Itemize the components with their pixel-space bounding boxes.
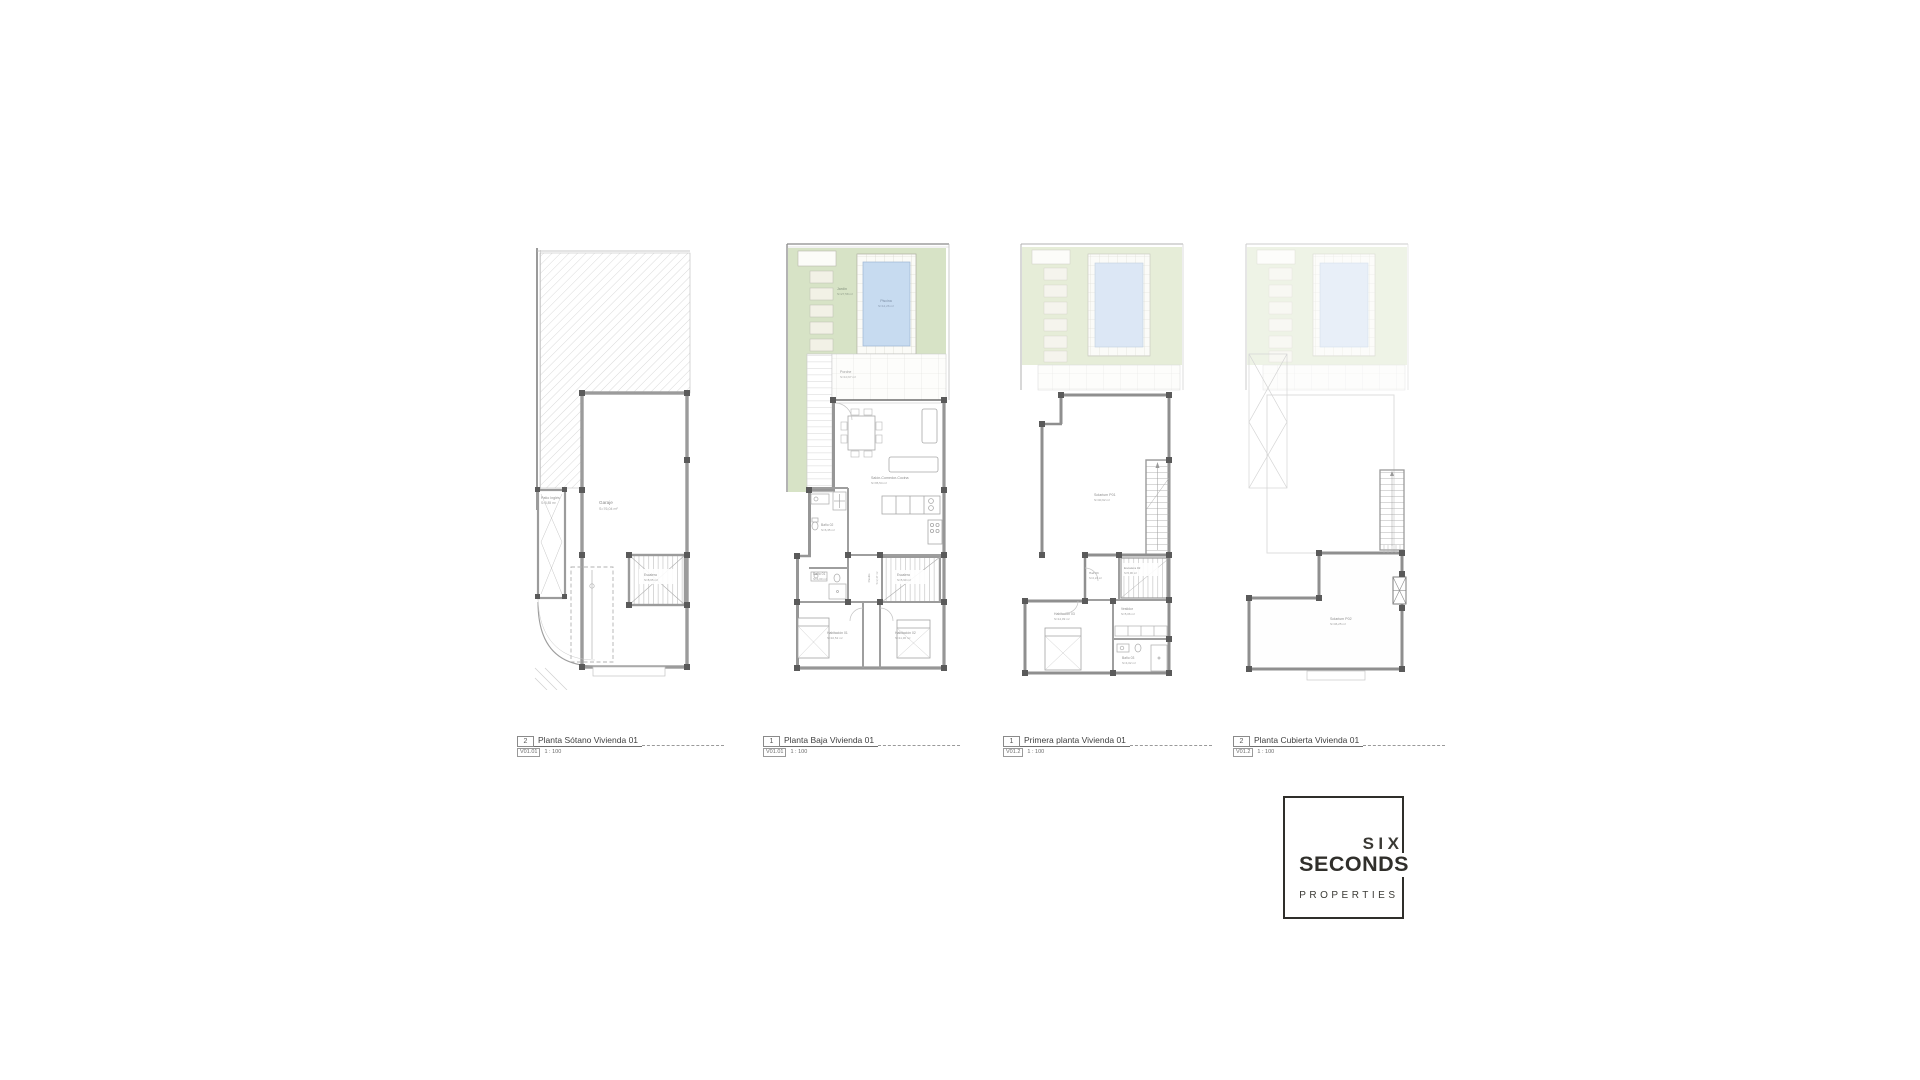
plan-sheet: Patio Inglés S=5,85 m² Garaje S=76,04 m²… xyxy=(0,0,1920,1080)
caption-dash-line xyxy=(642,745,724,746)
caption-dash-line xyxy=(1130,745,1212,746)
room-label-bano03-name: Baño 03 xyxy=(1122,656,1134,660)
caption-scale: 1 : 100 xyxy=(1027,748,1044,757)
room-label-hab02-name: Habitación 02 xyxy=(895,631,916,635)
bed-hab01 xyxy=(798,618,829,658)
bed-hab03 xyxy=(1045,628,1081,670)
room-label-pasillo-area: S=2,47 m² xyxy=(875,571,879,584)
room-label-hab02-area: S=11,36 m² xyxy=(895,636,910,640)
room-label-patio-name: Patio Inglés xyxy=(541,496,560,500)
logo-word-six: SIX xyxy=(1363,834,1404,854)
stair02 xyxy=(1121,558,1167,598)
room-label-patio-area: S=5,85 m² xyxy=(541,501,556,505)
room-label-bano02-area: S=6,35 m² xyxy=(821,528,835,532)
room-label-garaje-area: S=76,04 m² xyxy=(599,507,618,511)
logo-word-properties: PROPERTIES xyxy=(1299,890,1398,901)
room-label-bano01-name: Baño 01 xyxy=(813,572,825,576)
caption-title: Primera planta Vivienda 01 xyxy=(1020,735,1130,747)
room-label-hab01-area: S=10,52 m² xyxy=(827,636,843,640)
room-label-salon-name: Salón-Comedor-Cocina xyxy=(871,476,909,480)
stair-upper xyxy=(1146,460,1169,555)
room-label-bano03-area: S=4,02 m² xyxy=(1122,661,1136,665)
room-label-escalera02-name: Escalera 02 xyxy=(1124,566,1141,570)
ghost-garden xyxy=(1246,244,1408,390)
caption-sheet-number: V01.01 xyxy=(517,748,540,757)
caption-sheet-number: V01.2 xyxy=(1003,748,1023,757)
caption-dash-line xyxy=(1363,745,1445,746)
dining-table xyxy=(841,409,882,457)
wardrobe xyxy=(1115,626,1167,636)
room-label-escalera-name: Escalera xyxy=(644,573,657,577)
room-label-hall-name: Hall 03 xyxy=(1089,571,1099,575)
room-label-jardin-name: Jardín xyxy=(837,287,847,291)
caption-sheet-number: V01.01 xyxy=(763,748,786,757)
room-label-solarium-name: Solarium P02 xyxy=(1330,617,1352,621)
stair-roof xyxy=(1380,470,1404,550)
plan-sotano-drawing: Patio Inglés S=5,85 m² Garaje S=76,04 m²… xyxy=(533,238,713,690)
plan-baja-drawing: Jardín S=27,58 m² Piscina S=12,26 m² Por… xyxy=(785,238,953,690)
caption-number: 1 xyxy=(763,736,780,747)
room-label-jardin-area: S=27,58 m² xyxy=(837,292,853,296)
stepping-stones xyxy=(810,271,833,351)
room-label-escalera-name: Escalera xyxy=(897,573,910,577)
entry-step xyxy=(1307,671,1365,680)
caption-scale: 1 : 100 xyxy=(1257,748,1274,757)
room-label-hab03-name: Habitación 03 xyxy=(1054,612,1075,616)
ghost-garden xyxy=(1021,244,1183,390)
room-label-vestidor-name: Vestidor xyxy=(1121,607,1134,611)
plan-primera-drawing: Solarium P01 S=40,92 m² Hall 03 S=2,24 m… xyxy=(1018,238,1188,690)
caption-number: 1 xyxy=(1003,736,1020,747)
caption-scale: 1 : 100 xyxy=(790,748,807,757)
caption-sheet-number: V01.2 xyxy=(1233,748,1253,757)
solarium-p02-walls xyxy=(1249,553,1402,669)
room-label-escalera-area: S=5,90 m² xyxy=(897,578,911,582)
caption-title: Planta Sótano Vivienda 01 xyxy=(534,735,642,747)
caption-cubierta: 2 Planta Cubierta Vivienda 01 V01.2 1 : … xyxy=(1233,735,1445,757)
sofa xyxy=(889,409,938,472)
room-label-piscina-name: Piscina xyxy=(880,299,892,303)
room-label-porche-area: S=10,67 m² xyxy=(840,375,856,379)
shaft-hatch xyxy=(1393,577,1406,604)
caption-scale: 1 : 100 xyxy=(544,748,561,757)
room-label-solarium-area: S=46,25 m² xyxy=(1330,622,1346,626)
caption-title: Planta Cubierta Vivienda 01 xyxy=(1250,735,1363,747)
caption-baja: 1 Planta Baja Vivienda 01 V01.01 1 : 100 xyxy=(763,735,960,757)
room-label-solarium-area: S=40,92 m² xyxy=(1094,498,1110,502)
room-label-escalera02-area: S=5,96 m² xyxy=(1124,571,1137,575)
room-label-hall-area: S=2,24 m² xyxy=(1089,576,1102,580)
side-passage-green xyxy=(788,354,807,492)
room-label-bano02-name: Baño 02 xyxy=(821,523,833,527)
planter xyxy=(798,251,836,266)
room-label-escalera-area: S=8,65 m² xyxy=(644,578,658,582)
side-passage-steps xyxy=(807,354,832,492)
caption-sotano: 2 Planta Sótano Vivienda 01 V01.01 1 : 1… xyxy=(517,735,724,757)
kitchen-counter xyxy=(882,496,942,544)
room-label-bano01-area: S=4,00 m² xyxy=(813,577,827,581)
six-seconds-logo: SIX SECONDS PROPERTIES xyxy=(1283,796,1404,919)
room-label-solarium-name: Solarium P01 xyxy=(1094,493,1116,497)
logo-word-seconds: SECONDS xyxy=(1296,853,1409,877)
room-label-piscina-area: S=12,26 m² xyxy=(878,304,894,308)
street-markings xyxy=(535,668,567,690)
room-label-vestidor-area: S=5,06 m² xyxy=(1121,612,1135,616)
room-label-garaje-name: Garaje xyxy=(599,500,613,505)
caption-number: 2 xyxy=(517,736,534,747)
entry-step xyxy=(593,667,665,676)
room-label-hab03-area: S=14,09 m² xyxy=(1054,617,1070,621)
room-label-porche-name: Porche xyxy=(840,370,851,374)
plan-cubierta-drawing: Solarium P02 S=46,25 m² xyxy=(1243,238,1413,690)
room-label-hab01-name: Habitación 01 xyxy=(827,631,848,635)
room-label-pasillo-name: Pasillo xyxy=(867,573,871,582)
main-stair xyxy=(882,557,940,602)
caption-number: 2 xyxy=(1233,736,1250,747)
room-label-salon-area: S=35,54 m² xyxy=(871,481,887,485)
caption-dash-line xyxy=(878,745,960,746)
caption-primera: 1 Primera planta Vivienda 01 V01.2 1 : 1… xyxy=(1003,735,1212,757)
caption-title: Planta Baja Vivienda 01 xyxy=(780,735,878,747)
